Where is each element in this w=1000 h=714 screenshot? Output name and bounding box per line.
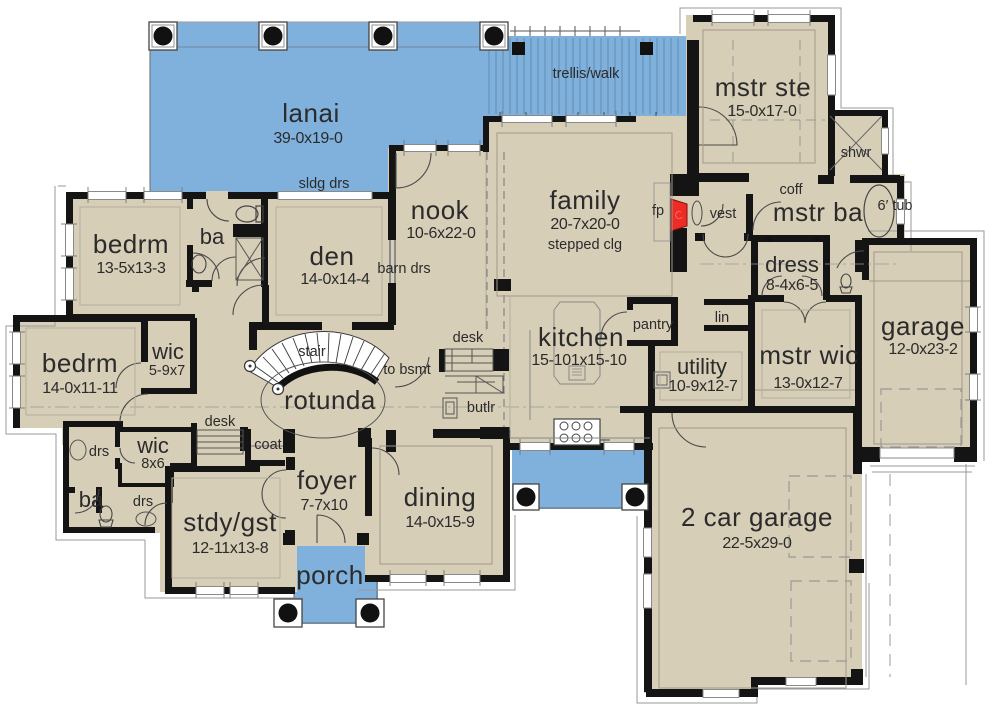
svg-text:ba: ba	[200, 224, 225, 249]
svg-text:mstr ste: mstr ste	[715, 72, 811, 102]
svg-text:coat: coat	[254, 437, 281, 453]
svg-text:drs: drs	[89, 444, 109, 460]
svg-text:2 car garage: 2 car garage	[681, 502, 833, 532]
svg-text:12-11x13-8: 12-11x13-8	[192, 540, 269, 557]
svg-text:lin: lin	[715, 310, 730, 326]
svg-text:bedrm: bedrm	[93, 229, 169, 259]
svg-text:fp: fp	[652, 203, 664, 219]
svg-text:desk: desk	[205, 414, 236, 430]
svg-text:14-0x15-9: 14-0x15-9	[405, 514, 475, 531]
svg-text:8-4x6-5: 8-4x6-5	[766, 277, 819, 294]
svg-text:22-5x29-0: 22-5x29-0	[722, 535, 792, 552]
svg-text:bedrm: bedrm	[42, 348, 118, 378]
svg-text:pantry: pantry	[633, 317, 674, 333]
svg-text:kitchen: kitchen	[538, 322, 624, 352]
svg-text:vest: vest	[710, 206, 737, 222]
svg-text:stepped clg: stepped clg	[548, 237, 622, 253]
svg-text:wic: wic	[136, 433, 169, 458]
svg-text:8x6: 8x6	[141, 456, 164, 472]
svg-text:20-7x20-0: 20-7x20-0	[550, 216, 620, 233]
svg-text:dining: dining	[404, 482, 476, 512]
svg-text:12-0x23-2: 12-0x23-2	[888, 341, 958, 358]
svg-text:wic: wic	[151, 339, 184, 364]
svg-text:stair: stair	[298, 344, 326, 360]
svg-text:den: den	[310, 241, 355, 271]
svg-text:5-9x7: 5-9x7	[149, 363, 185, 379]
svg-text:10-6x22-0: 10-6x22-0	[406, 225, 476, 242]
svg-text:mstr ba: mstr ba	[773, 197, 863, 227]
svg-text:39-0x19-0: 39-0x19-0	[273, 130, 343, 147]
svg-text:7-7x10: 7-7x10	[300, 497, 348, 514]
svg-text:13-5x13-3: 13-5x13-3	[96, 260, 166, 277]
svg-text:mstr wic: mstr wic	[759, 340, 858, 370]
svg-text:utility: utility	[677, 354, 727, 379]
svg-text:butlr: butlr	[467, 400, 495, 416]
svg-text:14-0x14-4: 14-0x14-4	[300, 271, 370, 288]
svg-text:garage: garage	[881, 311, 965, 341]
svg-text:foyer: foyer	[297, 465, 357, 495]
svg-text:stdy/gst: stdy/gst	[183, 507, 277, 537]
svg-text:rotunda: rotunda	[284, 385, 376, 415]
svg-text:10-9x12-7: 10-9x12-7	[668, 378, 738, 395]
svg-text:13-0x12-7: 13-0x12-7	[773, 375, 843, 392]
svg-text:family: family	[550, 185, 621, 215]
svg-text:drs: drs	[133, 494, 153, 510]
svg-text:shwr: shwr	[841, 145, 872, 161]
svg-text:nook: nook	[411, 195, 470, 225]
svg-text:desk: desk	[453, 330, 484, 346]
svg-text:14-0x11-11: 14-0x11-11	[42, 380, 118, 397]
svg-text:ba: ba	[79, 487, 104, 512]
svg-text:trellis/walk: trellis/walk	[553, 66, 621, 82]
svg-text:barn drs: barn drs	[377, 261, 430, 277]
svg-text:dress: dress	[765, 252, 819, 277]
svg-text:sldg drs: sldg drs	[299, 176, 350, 192]
svg-text:6′ tub: 6′ tub	[878, 198, 913, 214]
svg-text:porch: porch	[296, 560, 364, 590]
svg-text:15-0x17-0: 15-0x17-0	[727, 103, 797, 120]
svg-text:15-101x15-10: 15-101x15-10	[531, 352, 627, 369]
svg-text:to bsmt: to bsmt	[383, 362, 431, 378]
svg-text:lanai: lanai	[282, 98, 339, 128]
svg-text:coff: coff	[779, 182, 803, 198]
